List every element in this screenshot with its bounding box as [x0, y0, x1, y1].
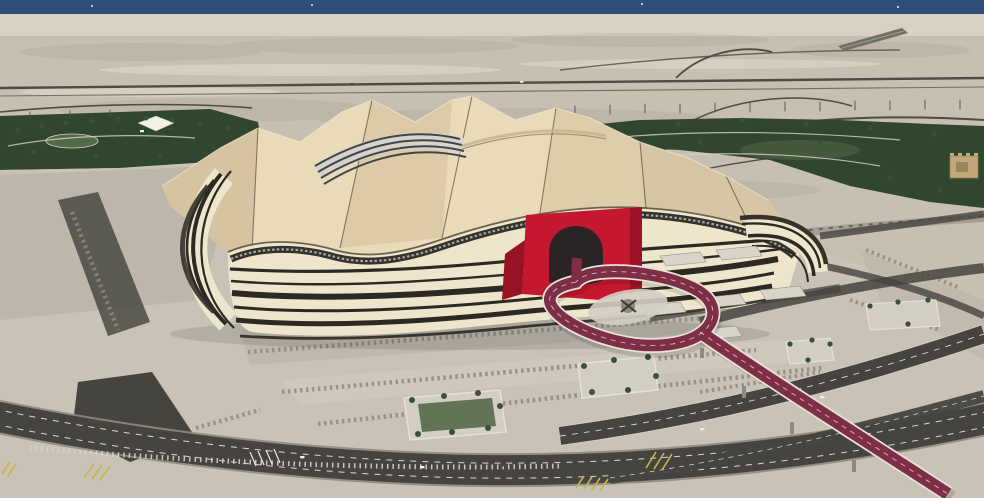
tree: [905, 321, 910, 326]
tree: [805, 357, 810, 362]
car: [350, 83, 354, 85]
tree: [818, 140, 822, 144]
tree: [698, 140, 702, 144]
aerial-photo-canvas: [0, 0, 984, 498]
tree: [64, 121, 69, 126]
tree: [40, 124, 45, 129]
fort-tower: [950, 153, 954, 156]
tree: [441, 393, 447, 399]
fort-building: [950, 153, 978, 178]
tree: [409, 397, 415, 403]
aerial-photo: [0, 0, 984, 498]
tree: [32, 150, 36, 154]
tree: [497, 403, 503, 409]
pier: [790, 422, 794, 434]
ship: [311, 4, 313, 6]
tree: [895, 299, 900, 304]
tree: [226, 126, 231, 131]
tree: [611, 357, 617, 363]
planter-bed: [418, 398, 496, 432]
horizon-haze: [0, 14, 984, 36]
tree: [475, 390, 481, 396]
pier: [742, 386, 746, 398]
tree: [787, 341, 792, 346]
tree: [653, 373, 659, 379]
tree: [581, 363, 587, 369]
tree: [90, 119, 95, 124]
tree: [809, 337, 814, 342]
tree: [485, 425, 491, 431]
car: [300, 456, 305, 458]
tree: [116, 117, 121, 122]
fort-tower: [966, 153, 970, 156]
car: [700, 428, 705, 430]
ship: [641, 3, 643, 5]
planter-frame: [866, 300, 940, 330]
tree: [804, 122, 809, 127]
tree: [888, 176, 892, 180]
sand-streak: [100, 64, 500, 76]
fort-courtyard: [956, 162, 968, 172]
sea-horizon: [0, 0, 984, 16]
fort-tower: [958, 153, 962, 156]
tree: [932, 132, 937, 137]
pier: [852, 460, 856, 472]
arch-exit-ramp: [576, 258, 577, 284]
tree: [158, 155, 162, 159]
tree: [144, 116, 149, 121]
car: [420, 466, 425, 468]
tree: [198, 122, 203, 127]
tree: [925, 297, 930, 302]
fort-tower: [974, 153, 978, 156]
tree: [16, 128, 21, 133]
desert-patch: [510, 33, 770, 47]
tree: [676, 122, 681, 127]
tree: [589, 389, 595, 395]
desert-patch: [220, 38, 520, 54]
tree: [827, 341, 832, 346]
park-lawn-patch: [740, 140, 860, 160]
tree: [170, 118, 175, 123]
tree: [94, 154, 98, 158]
car: [140, 130, 144, 132]
car: [820, 396, 825, 398]
tree: [449, 429, 455, 435]
car: [520, 81, 524, 83]
car: [500, 464, 505, 466]
tree: [740, 118, 745, 123]
tree: [938, 188, 942, 192]
pier: [700, 348, 704, 358]
car: [168, 128, 172, 130]
ship: [897, 6, 899, 8]
tree: [867, 303, 872, 308]
tree: [625, 387, 631, 393]
ship: [91, 5, 93, 7]
tree: [868, 126, 873, 131]
tree: [415, 431, 421, 437]
